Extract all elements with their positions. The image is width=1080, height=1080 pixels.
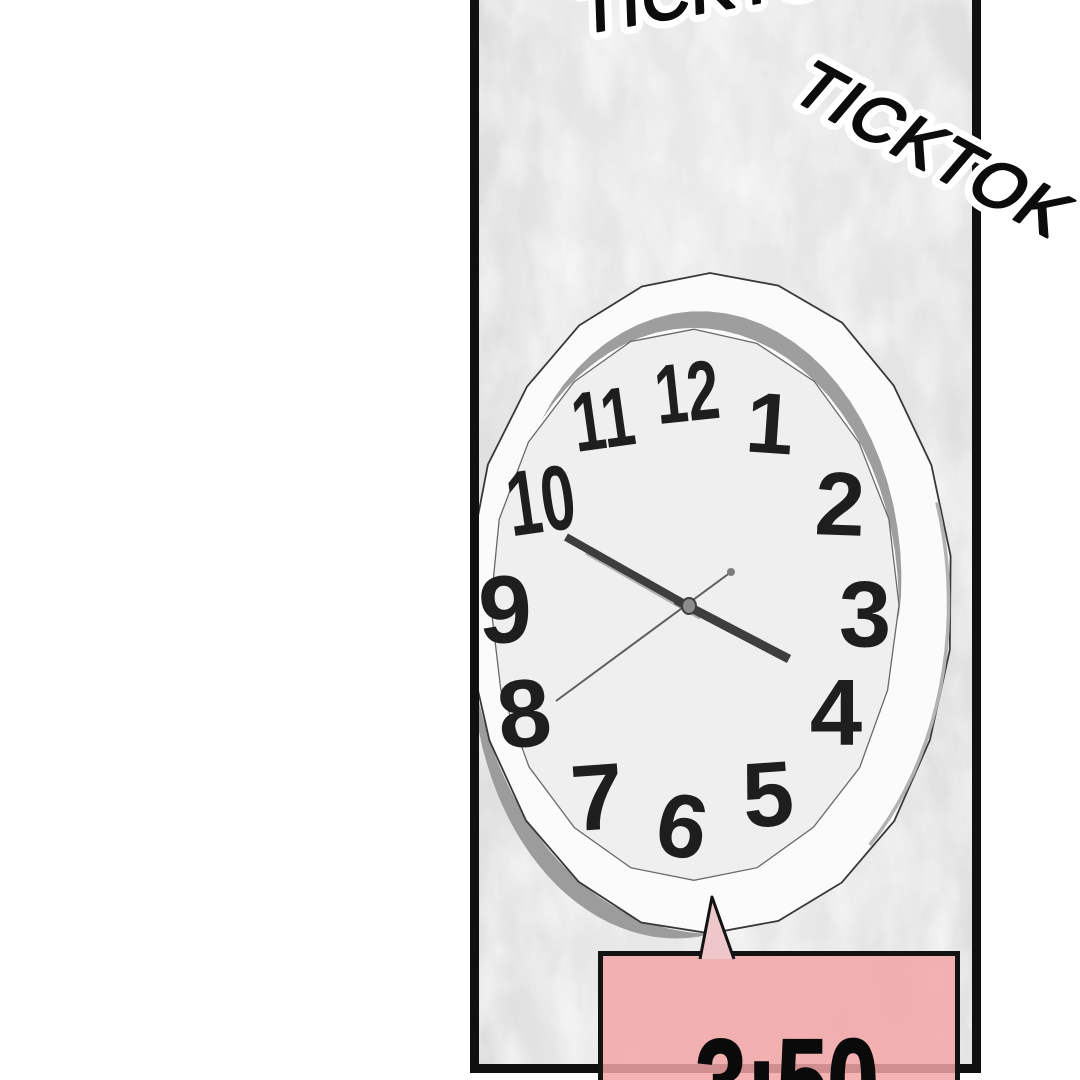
svg-text:7: 7 bbox=[567, 743, 626, 851]
svg-text:5: 5 bbox=[739, 742, 797, 847]
svg-text:12: 12 bbox=[650, 342, 723, 442]
svg-text:3: 3 bbox=[839, 562, 891, 667]
svg-text:9: 9 bbox=[476, 556, 533, 665]
svg-text:3:50: 3:50 bbox=[696, 1014, 879, 1080]
svg-text:8: 8 bbox=[492, 658, 556, 770]
svg-text:11: 11 bbox=[566, 368, 640, 470]
svg-text:2: 2 bbox=[813, 454, 867, 556]
svg-text:1: 1 bbox=[743, 374, 797, 473]
svg-text:4: 4 bbox=[810, 660, 862, 765]
